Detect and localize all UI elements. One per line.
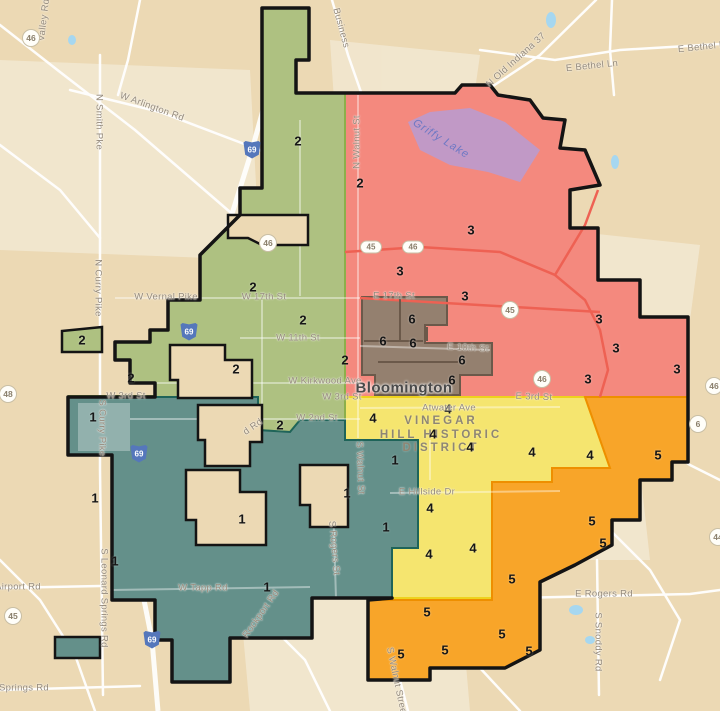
district-2-wedge-area[interactable] <box>62 327 102 352</box>
district-1-detached-area[interactable] <box>55 637 100 658</box>
light-urban-area <box>78 403 130 451</box>
map-canvas[interactable]: Bloomington VINEGAR HILL HISTORIC DISTRI… <box>0 0 720 711</box>
map-graphics <box>0 0 720 711</box>
